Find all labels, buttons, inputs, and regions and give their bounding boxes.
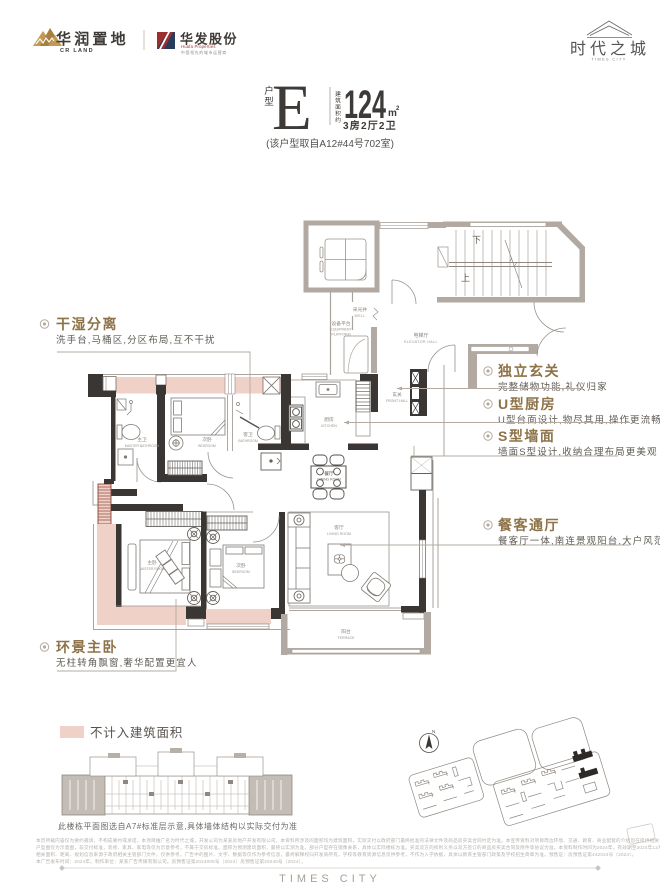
svg-text:独立玄关: 独立玄关 bbox=[498, 363, 560, 379]
svg-text:电梯厅: 电梯厅 bbox=[413, 332, 428, 339]
svg-text:上: 上 bbox=[461, 273, 470, 283]
svg-text:洗手台,马桶区,分区布局,互不干扰: 洗手台,马桶区,分区布局,互不干扰 bbox=[56, 334, 216, 346]
svg-text:建: 建 bbox=[335, 90, 341, 98]
svg-text:此楼栋平面图选自A7#标准层示意,具体墙体结构以实际交付为准: 此楼栋平面图选自A7#标准层示意,具体墙体结构以实际交付为准 bbox=[58, 821, 297, 831]
svg-text:LIVING ROOM: LIVING ROOM bbox=[327, 532, 351, 536]
svg-text:TERRACE: TERRACE bbox=[337, 636, 355, 640]
svg-text:采光井: 采光井 bbox=[353, 306, 368, 313]
svg-text:约: 约 bbox=[335, 116, 341, 124]
svg-text:TIMES CITY: TIMES CITY bbox=[591, 58, 626, 62]
svg-text:S型墙面: S型墙面 bbox=[498, 428, 555, 444]
svg-text:次卧: 次卧 bbox=[236, 562, 246, 569]
svg-text:完整储物功能,礼仪归家: 完整储物功能,礼仪归家 bbox=[498, 381, 608, 393]
svg-text:下: 下 bbox=[472, 235, 481, 245]
svg-text:KITCHEN: KITCHEN bbox=[321, 424, 337, 428]
svg-text:(该户型取自A12#44号702室): (该户型取自A12#44号702室) bbox=[266, 137, 394, 150]
svg-text:BATHROOM: BATHROOM bbox=[238, 439, 258, 443]
svg-text:U型台面设计,物尽其用,操作更流畅: U型台面设计,物尽其用,操作更流畅 bbox=[498, 414, 660, 426]
svg-text:主卫: 主卫 bbox=[137, 436, 147, 443]
svg-text:WELL: WELL bbox=[355, 314, 366, 318]
svg-text:FRONT HALL: FRONT HALL bbox=[386, 399, 408, 403]
svg-text:CR LAND: CR LAND bbox=[60, 48, 94, 54]
svg-text:筑: 筑 bbox=[335, 97, 341, 105]
svg-text:ELEVATOR HALL: ELEVATOR HALL bbox=[404, 340, 438, 344]
svg-text:主卧: 主卧 bbox=[147, 559, 157, 566]
svg-text:环景主卧: 环景主卧 bbox=[56, 639, 118, 655]
svg-text:本页所载内容仅为要约邀请，不构成要约或承诺。本项目推广名为时: 本页所载内容仅为要约邀请，不构成要约或承诺。本项目推广名为时代之城，开发公司为某… bbox=[36, 837, 660, 844]
svg-text:不计入建筑面积: 不计入建筑面积 bbox=[90, 725, 183, 740]
svg-text:BEDROOM: BEDROOM bbox=[198, 444, 216, 448]
svg-text:积: 积 bbox=[335, 110, 341, 118]
svg-text:3房2厅2卫: 3房2厅2卫 bbox=[343, 119, 397, 132]
svg-text:干湿分离: 干湿分离 bbox=[56, 316, 118, 332]
svg-text:华润置地: 华润置地 bbox=[56, 30, 129, 48]
svg-text:PLATFORM: PLATFORM bbox=[331, 333, 350, 337]
svg-text:设备平台: 设备平台 bbox=[331, 320, 350, 327]
svg-text:客卫: 客卫 bbox=[243, 431, 253, 438]
svg-text:U型厨房: U型厨房 bbox=[498, 396, 556, 412]
svg-text:面: 面 bbox=[335, 104, 341, 111]
svg-text:N: N bbox=[432, 729, 435, 734]
svg-text:TIMES CITY: TIMES CITY bbox=[279, 873, 381, 885]
svg-text:BEDROOM: BEDROOM bbox=[232, 570, 250, 574]
svg-text:客厅: 客厅 bbox=[334, 524, 344, 531]
svg-text:E: E bbox=[272, 72, 312, 144]
svg-text:户型图仅为示意图，非交付标准，装修、家具、家电等仅为示意参考: 户型图仅为示意图，非交付标准，装修、家具、家电等仅为示意参考，不属于交房标准。面… bbox=[36, 844, 660, 851]
svg-text:玄关: 玄关 bbox=[392, 391, 402, 398]
svg-text:餐客通厅: 餐客通厅 bbox=[497, 517, 560, 533]
svg-text:本广告发布时间：2024年。制作单位：某某广告传媒有限公司。: 本广告发布时间：2024年。制作单位：某某广告传媒有限公司。房预售证第20240… bbox=[36, 858, 306, 865]
svg-text:中国领先的城市运营商: 中国领先的城市运营商 bbox=[181, 50, 227, 55]
svg-text:DINING ROOM: DINING ROOM bbox=[317, 478, 341, 482]
svg-text:餐厅: 餐厅 bbox=[324, 470, 334, 477]
svg-text:时代之城: 时代之城 bbox=[570, 40, 650, 58]
svg-text:MASTER ROOM: MASTER ROOM bbox=[139, 567, 165, 571]
svg-text:厨房: 厨房 bbox=[324, 416, 334, 423]
svg-text:阳台: 阳台 bbox=[341, 628, 351, 635]
svg-text:相关面积、距离、规划信息来源于政府相关主管部门文件，仅供参考: 相关面积、距离、规划信息来源于政府相关主管部门文件，仅供参考。广告中的图片、文字… bbox=[36, 851, 637, 858]
svg-text:MASTER BATHROOM: MASTER BATHROOM bbox=[125, 444, 160, 448]
svg-text:次卧: 次卧 bbox=[202, 436, 212, 443]
svg-text:Huafa Properties: Huafa Properties bbox=[181, 44, 216, 49]
svg-text:EQUIPMENT: EQUIPMENT bbox=[330, 328, 352, 332]
